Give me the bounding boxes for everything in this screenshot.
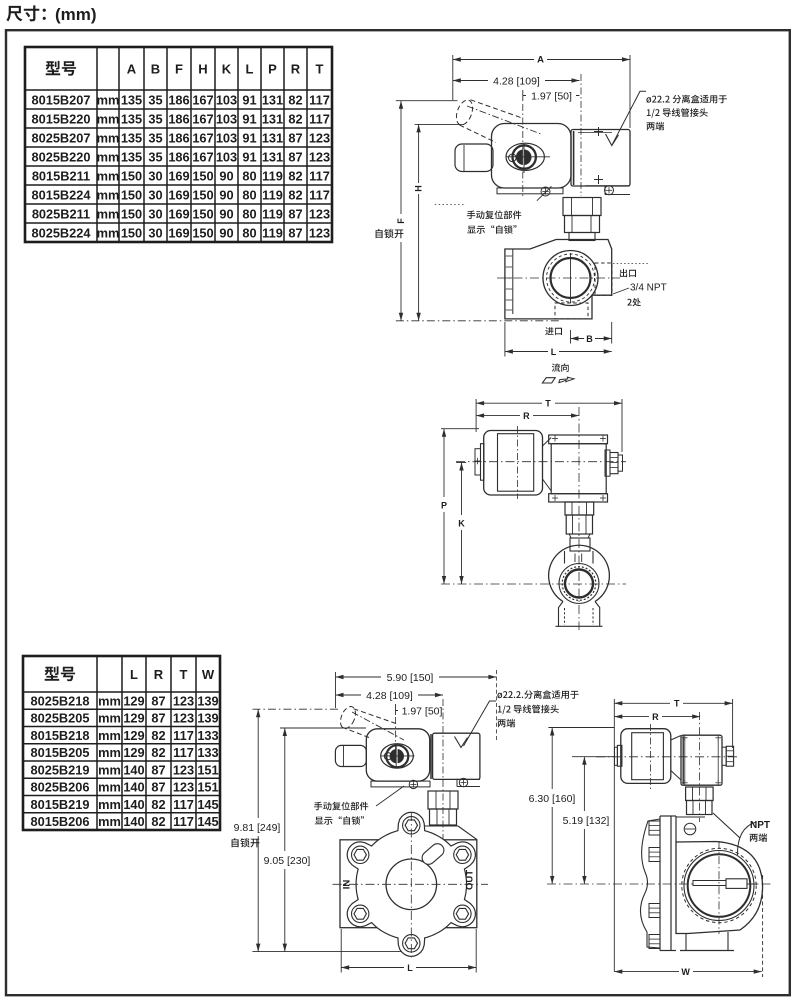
svg-text:mm: mm (97, 149, 120, 164)
svg-text:140: 140 (123, 814, 144, 829)
svg-text:30: 30 (148, 225, 162, 240)
svg-text:(mm): (mm) (55, 5, 97, 24)
svg-text:167: 167 (192, 130, 213, 145)
svg-text:87: 87 (151, 762, 165, 777)
svg-text:87: 87 (151, 780, 165, 795)
svg-text:150: 150 (192, 225, 213, 240)
svg-text:103: 103 (216, 92, 237, 107)
svg-text:82: 82 (151, 728, 165, 743)
svg-text:90: 90 (219, 225, 233, 240)
svg-text:W: W (681, 967, 690, 977)
svg-text:129: 129 (123, 728, 144, 743)
svg-text:117: 117 (309, 111, 330, 126)
svg-text:135: 135 (121, 92, 142, 107)
svg-text:T: T (545, 398, 551, 408)
svg-text:80: 80 (242, 206, 256, 221)
svg-text:129: 129 (123, 745, 144, 760)
svg-text:186: 186 (168, 111, 189, 126)
svg-text:119: 119 (262, 168, 283, 183)
svg-text:mm: mm (97, 206, 120, 221)
svg-text:mm: mm (98, 728, 121, 743)
svg-text:90: 90 (219, 206, 233, 221)
svg-text:K: K (222, 62, 232, 77)
svg-text:117: 117 (309, 92, 330, 107)
svg-text:1.97 [50]: 1.97 [50] (531, 90, 572, 102)
svg-text:mm: mm (98, 797, 121, 812)
svg-text:82: 82 (288, 168, 302, 183)
svg-text:IN: IN (342, 880, 353, 890)
svg-text:123: 123 (173, 762, 194, 777)
svg-text:150: 150 (121, 187, 142, 202)
svg-text:9.05 [230]: 9.05 [230] (264, 855, 311, 867)
svg-text:129: 129 (123, 693, 144, 708)
svg-text:mm: mm (97, 187, 120, 202)
svg-text:35: 35 (148, 111, 162, 126)
svg-text:150: 150 (121, 168, 142, 183)
svg-text:K: K (458, 518, 465, 528)
svg-text:169: 169 (168, 187, 189, 202)
svg-text:150: 150 (121, 206, 142, 221)
svg-text:123: 123 (309, 206, 330, 221)
svg-text:T: T (316, 62, 324, 77)
svg-text:L: L (407, 963, 413, 973)
svg-text:145: 145 (197, 814, 218, 829)
svg-text:169: 169 (168, 168, 189, 183)
svg-text:P: P (441, 500, 447, 510)
svg-text:82: 82 (288, 92, 302, 107)
svg-text:35: 35 (148, 130, 162, 145)
svg-text:186: 186 (168, 92, 189, 107)
svg-text:82: 82 (151, 745, 165, 760)
svg-text:91: 91 (242, 130, 256, 145)
svg-text:L: L (130, 667, 138, 682)
svg-text:87: 87 (288, 130, 302, 145)
svg-text:131: 131 (262, 92, 283, 107)
svg-text:mm: mm (98, 693, 121, 708)
svg-text:35: 35 (148, 92, 162, 107)
svg-text:139: 139 (197, 693, 218, 708)
svg-text:150: 150 (192, 168, 213, 183)
svg-text:B: B (151, 62, 160, 77)
svg-text:8025B220: 8025B220 (31, 149, 90, 164)
svg-text:H: H (414, 185, 424, 192)
svg-text:R: R (523, 411, 530, 421)
svg-text:3/4 NPT: 3/4 NPT (630, 283, 667, 294)
svg-text:R: R (154, 667, 164, 682)
svg-text:150: 150 (192, 206, 213, 221)
svg-text:F: F (396, 218, 406, 224)
svg-text:8015B218: 8015B218 (30, 728, 89, 743)
svg-text:H: H (198, 62, 207, 77)
svg-text:117: 117 (173, 797, 194, 812)
svg-text:139: 139 (197, 711, 218, 726)
svg-text:80: 80 (242, 225, 256, 240)
svg-text:30: 30 (148, 187, 162, 202)
svg-text:123: 123 (309, 130, 330, 145)
svg-text:mm: mm (98, 711, 121, 726)
svg-text:8015B207: 8015B207 (31, 92, 90, 107)
svg-text:mm: mm (97, 225, 120, 240)
svg-text:123: 123 (309, 225, 330, 240)
svg-text:80: 80 (242, 187, 256, 202)
svg-text:8015B224: 8015B224 (31, 187, 91, 202)
svg-text:NPT: NPT (750, 820, 770, 831)
svg-text:91: 91 (242, 111, 256, 126)
svg-text:151: 151 (197, 780, 218, 795)
svg-text:82: 82 (288, 187, 302, 202)
svg-text:167: 167 (192, 111, 213, 126)
svg-text:131: 131 (262, 149, 283, 164)
svg-text:P: P (268, 62, 277, 77)
svg-text:131: 131 (262, 111, 283, 126)
svg-text:L: L (551, 347, 557, 357)
svg-text:87: 87 (288, 206, 302, 221)
svg-text:117: 117 (173, 745, 194, 760)
svg-text:8025B206: 8025B206 (30, 780, 89, 795)
svg-text:8015B219: 8015B219 (30, 797, 89, 812)
svg-text:4.28 [109]: 4.28 [109] (366, 690, 413, 702)
svg-text:30: 30 (148, 168, 162, 183)
svg-text:140: 140 (123, 797, 144, 812)
svg-text:119: 119 (262, 225, 283, 240)
svg-text:117: 117 (309, 187, 330, 202)
svg-text:123: 123 (309, 149, 330, 164)
svg-text:133: 133 (197, 728, 218, 743)
svg-text:131: 131 (262, 130, 283, 145)
svg-text:135: 135 (121, 111, 142, 126)
svg-text:117: 117 (173, 728, 194, 743)
svg-text:mm: mm (98, 814, 121, 829)
svg-text:5.19 [132]: 5.19 [132] (563, 815, 610, 827)
svg-text:30: 30 (148, 206, 162, 221)
svg-text:4.28 [109]: 4.28 [109] (493, 75, 540, 87)
svg-text:82: 82 (151, 814, 165, 829)
svg-text:117: 117 (309, 168, 330, 183)
svg-text:A: A (537, 55, 544, 66)
svg-text:151: 151 (197, 762, 218, 777)
svg-text:186: 186 (168, 149, 189, 164)
svg-text:mm: mm (97, 168, 120, 183)
svg-text:B: B (586, 334, 593, 344)
svg-text:6.30 [160]: 6.30 [160] (529, 793, 576, 805)
svg-text:87: 87 (151, 693, 165, 708)
svg-text:133: 133 (197, 745, 218, 760)
svg-text:mm: mm (98, 762, 121, 777)
svg-text:5.90 [150]: 5.90 [150] (387, 672, 434, 684)
svg-text:82: 82 (288, 111, 302, 126)
svg-text:169: 169 (168, 206, 189, 221)
svg-text:80: 80 (242, 168, 256, 183)
svg-text:8025B218: 8025B218 (30, 693, 89, 708)
svg-text:mm: mm (98, 780, 121, 795)
svg-text:145: 145 (197, 797, 218, 812)
svg-text:135: 135 (121, 130, 142, 145)
svg-text:F: F (175, 62, 183, 77)
svg-text:35: 35 (148, 149, 162, 164)
svg-text:123: 123 (173, 780, 194, 795)
svg-text:135: 135 (121, 149, 142, 164)
svg-text:150: 150 (121, 225, 142, 240)
svg-text:167: 167 (192, 92, 213, 107)
svg-text:90: 90 (219, 168, 233, 183)
svg-text:mm: mm (97, 130, 120, 145)
svg-text:mm: mm (97, 111, 120, 126)
svg-text:150: 150 (192, 187, 213, 202)
svg-text:R: R (291, 62, 301, 77)
svg-text:87: 87 (288, 149, 302, 164)
svg-text:1.97 [50]: 1.97 [50] (402, 705, 443, 717)
svg-text:91: 91 (242, 92, 256, 107)
svg-text:167: 167 (192, 149, 213, 164)
svg-text:129: 129 (123, 711, 144, 726)
svg-text:140: 140 (123, 762, 144, 777)
svg-text:87: 87 (151, 711, 165, 726)
svg-text:186: 186 (168, 130, 189, 145)
svg-text:8025B219: 8025B219 (30, 762, 89, 777)
svg-text:8015B206: 8015B206 (30, 814, 89, 829)
svg-text:169: 169 (168, 225, 189, 240)
svg-text:91: 91 (242, 149, 256, 164)
svg-text:T: T (674, 698, 680, 708)
svg-text:OUT: OUT (465, 870, 476, 890)
svg-text:119: 119 (262, 187, 283, 202)
svg-text:8015B205: 8015B205 (30, 745, 89, 760)
svg-text:123: 123 (173, 693, 194, 708)
svg-text:8025B211: 8025B211 (32, 206, 90, 221)
svg-text:140: 140 (123, 780, 144, 795)
svg-text:119: 119 (262, 206, 283, 221)
svg-text:A: A (127, 62, 137, 77)
svg-text:W: W (202, 667, 215, 682)
svg-text:103: 103 (216, 130, 237, 145)
svg-text:87: 87 (288, 225, 302, 240)
svg-text:103: 103 (216, 111, 237, 126)
svg-text:9.81 [249]: 9.81 [249] (234, 822, 281, 834)
svg-text:8025B207: 8025B207 (31, 130, 90, 145)
svg-text:L: L (246, 62, 254, 77)
svg-text:90: 90 (219, 187, 233, 202)
svg-text:8015B211: 8015B211 (32, 168, 90, 183)
svg-text:82: 82 (151, 797, 165, 812)
svg-text:R: R (652, 712, 659, 722)
svg-text:117: 117 (173, 814, 194, 829)
svg-text:mm: mm (98, 745, 121, 760)
svg-text:T: T (180, 667, 188, 682)
svg-text:123: 123 (173, 711, 194, 726)
svg-text:8015B220: 8015B220 (31, 111, 90, 126)
svg-text:8025B224: 8025B224 (31, 225, 91, 240)
svg-text:mm: mm (97, 92, 120, 107)
svg-text:8025B205: 8025B205 (30, 711, 89, 726)
svg-text:103: 103 (216, 149, 237, 164)
